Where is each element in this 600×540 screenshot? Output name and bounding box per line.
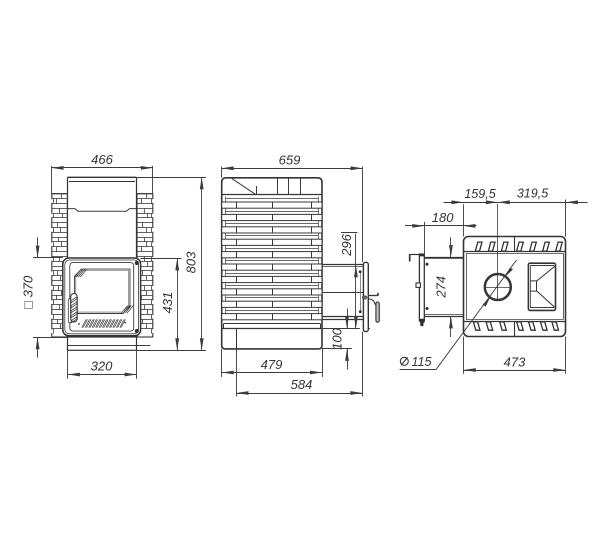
svg-text:431: 431 xyxy=(160,292,175,314)
svg-text:584: 584 xyxy=(291,377,313,392)
svg-text:274: 274 xyxy=(434,276,449,299)
svg-text:466: 466 xyxy=(91,152,113,167)
svg-text:473: 473 xyxy=(504,354,526,369)
svg-text:□ 370: □ 370 xyxy=(21,275,36,309)
svg-text:479: 479 xyxy=(261,357,283,372)
svg-text:180: 180 xyxy=(432,210,454,225)
svg-text:659: 659 xyxy=(279,152,301,167)
svg-text:320: 320 xyxy=(91,359,113,374)
svg-text:100: 100 xyxy=(329,327,344,349)
svg-text:296: 296 xyxy=(339,233,354,256)
svg-text:115: 115 xyxy=(412,355,432,369)
svg-text:319,5: 319,5 xyxy=(517,187,548,201)
svg-text:803: 803 xyxy=(183,251,198,273)
svg-text:159,5: 159,5 xyxy=(464,187,495,201)
